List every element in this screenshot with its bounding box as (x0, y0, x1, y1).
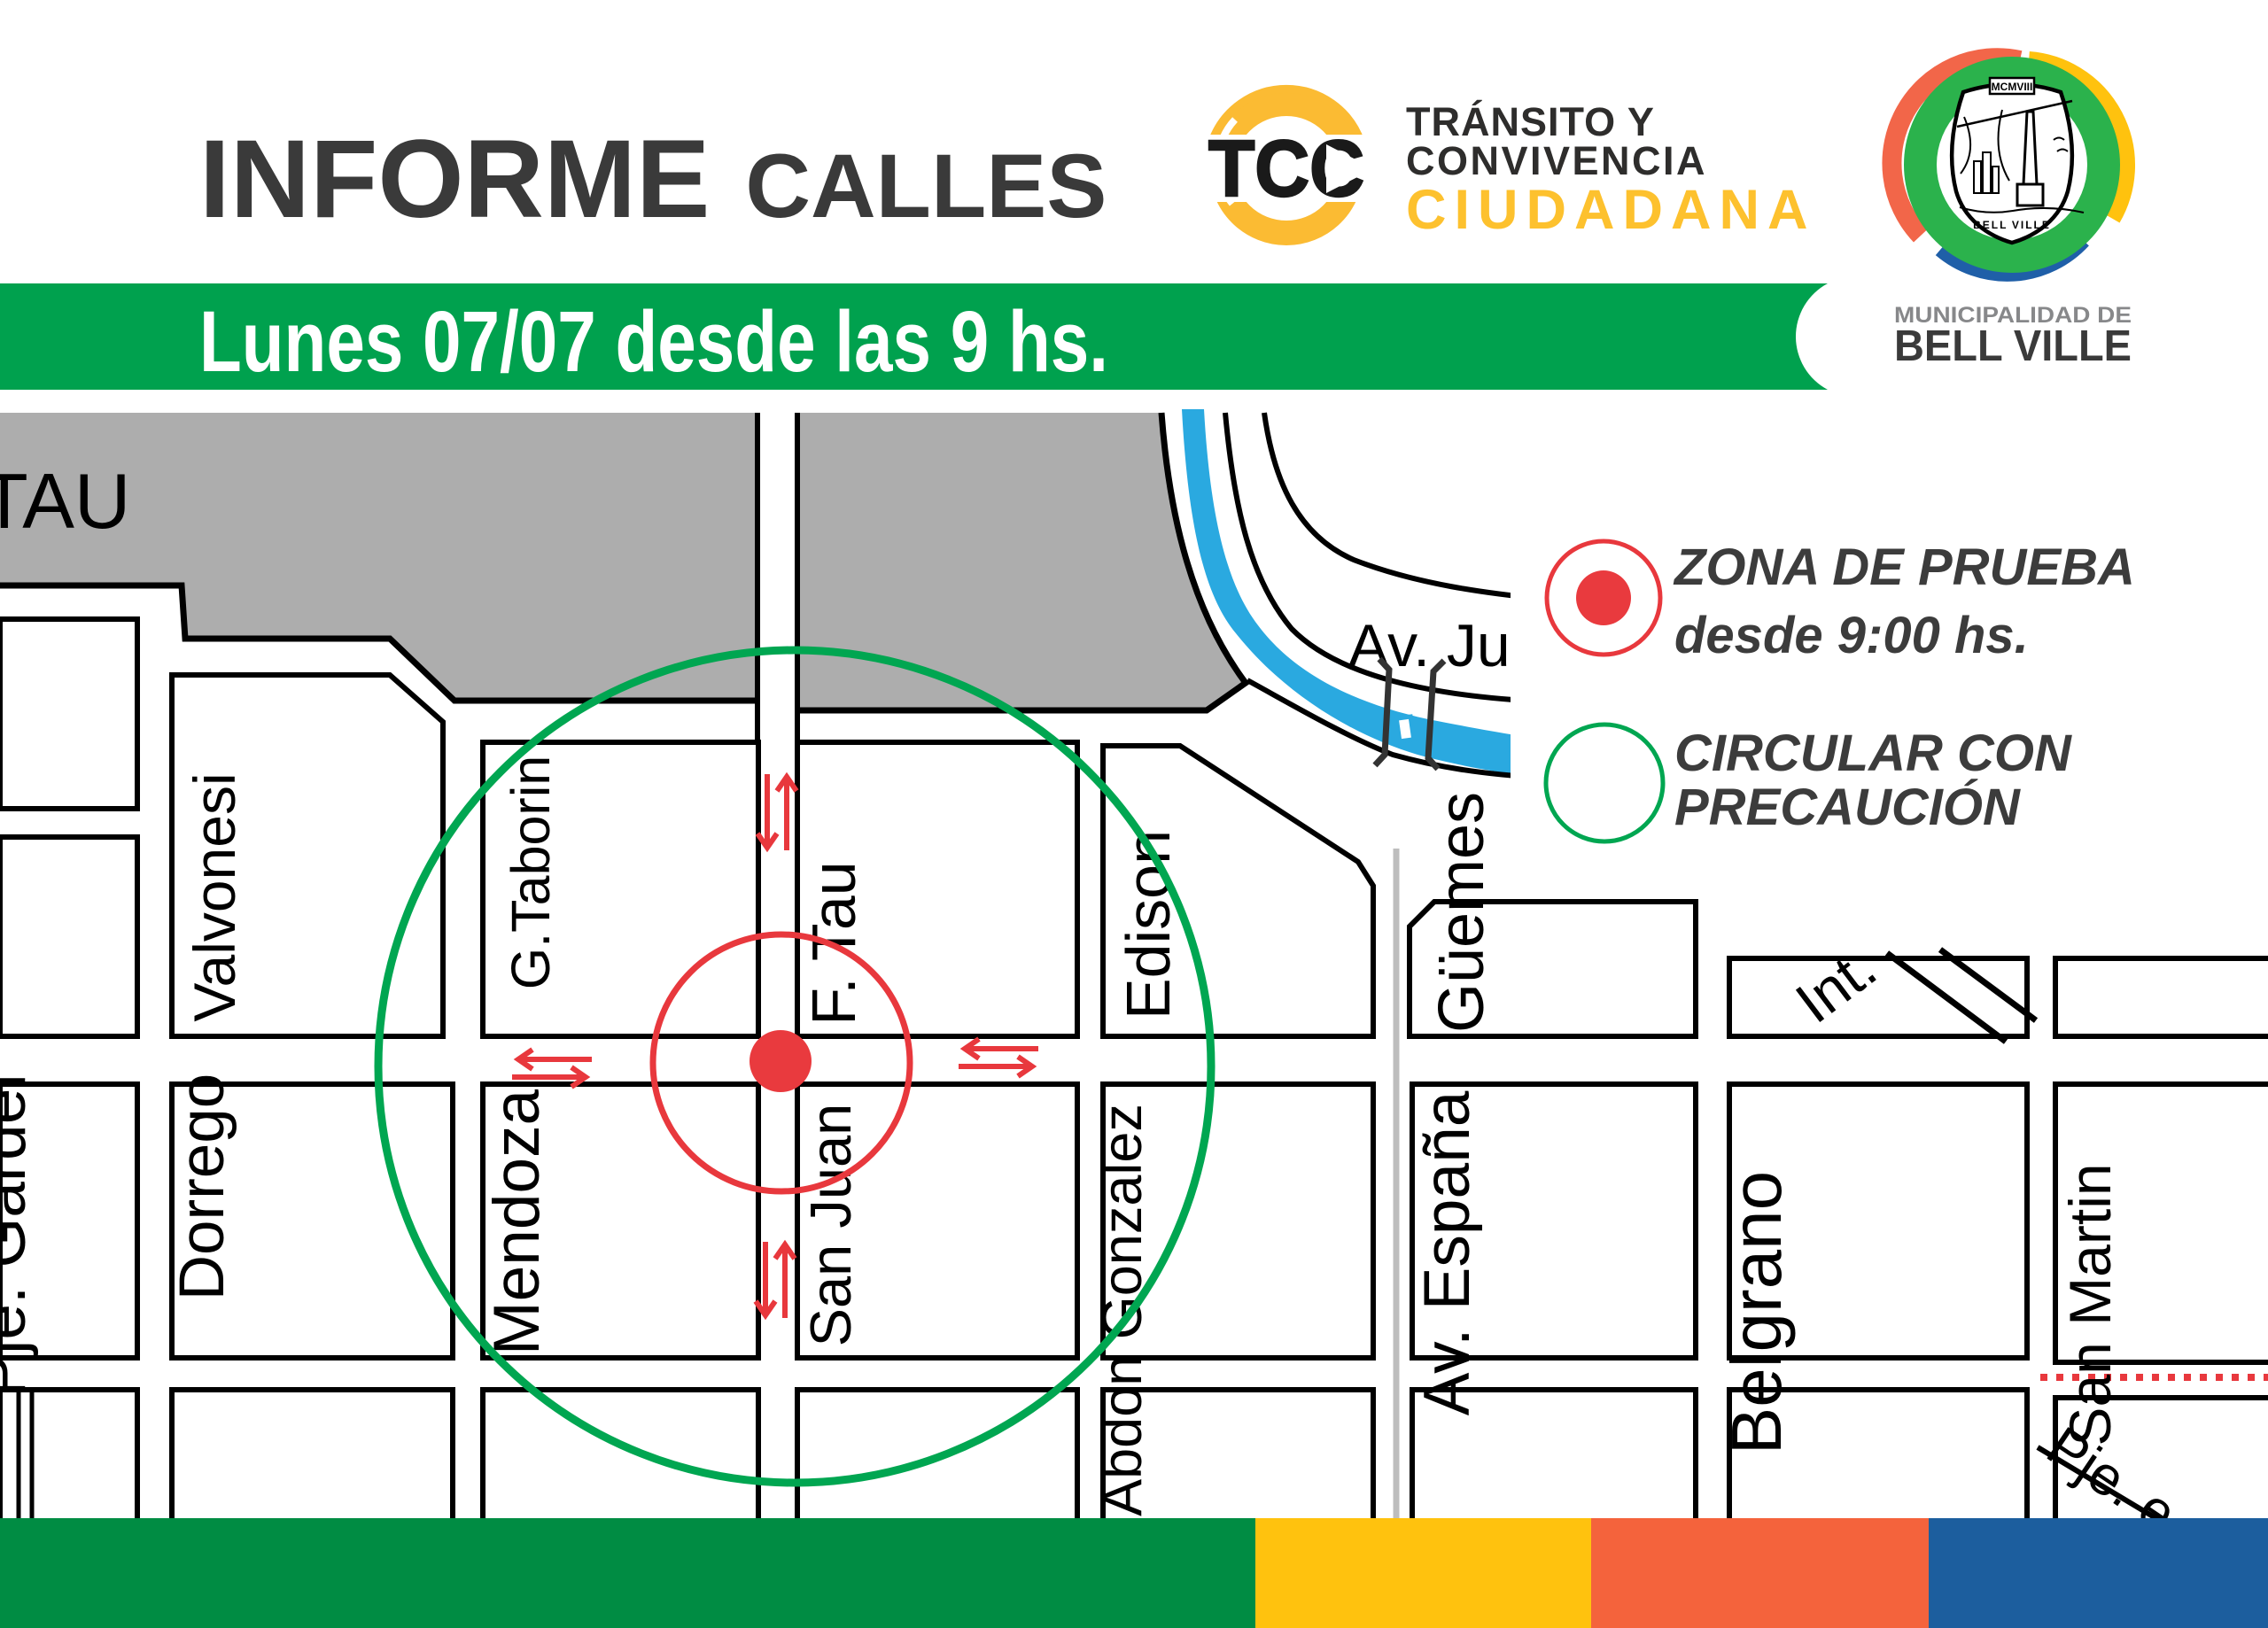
svg-text:desde 9:00 hs.: desde 9:00 hs. (1674, 607, 2029, 664)
svg-text:Edison: Edison (1114, 830, 1183, 1019)
svg-text:Mendoza: Mendoza (481, 1089, 553, 1355)
svg-text:Belgrano: Belgrano (1717, 1171, 1796, 1454)
svg-text:BELL VILLE: BELL VILLE (1894, 322, 2132, 370)
svg-text:San Juan: San Juan (798, 1104, 863, 1347)
svg-text:Güemes: Güemes (1426, 792, 1497, 1033)
svg-text:ZONA DE PRUEBA: ZONA DE PRUEBA (1673, 539, 2135, 596)
svg-text:CONVIVENCIA: CONVIVENCIA (1406, 138, 1707, 183)
svg-text:Lunes 07/07 desde las 9 hs.: Lunes 07/07 desde las 9 hs. (199, 293, 1108, 390)
svg-text:Dorrego: Dorrego (167, 1074, 237, 1301)
svg-text:Valvonesi: Valvonesi (182, 772, 247, 1021)
svg-text:MCMVIII: MCMVIII (1992, 81, 2033, 93)
svg-text:TAU: TAU (0, 457, 130, 545)
svg-text:San Martin: San Martin (2057, 1163, 2123, 1446)
svg-text:BELL VILLE: BELL VILLE (1973, 219, 2051, 231)
svg-text:CIRCULAR CON: CIRCULAR CON (1674, 725, 2072, 782)
svg-text:PRECAUCIÓN: PRECAUCIÓN (1674, 779, 2021, 836)
svg-text:Pje. Gardel: Pje. Gardel (0, 1074, 39, 1397)
svg-text:G.Taborin: G.Taborin (501, 756, 561, 989)
svg-text:INFORMECALLES: INFORMECALLES (199, 118, 1107, 241)
svg-text:Abdon Gonzalez: Abdon Gonzalez (1091, 1104, 1153, 1516)
svg-text:CIUDADANA: CIUDADANA (1406, 179, 1815, 241)
svg-text:Av. España: Av. España (1411, 1090, 1483, 1415)
